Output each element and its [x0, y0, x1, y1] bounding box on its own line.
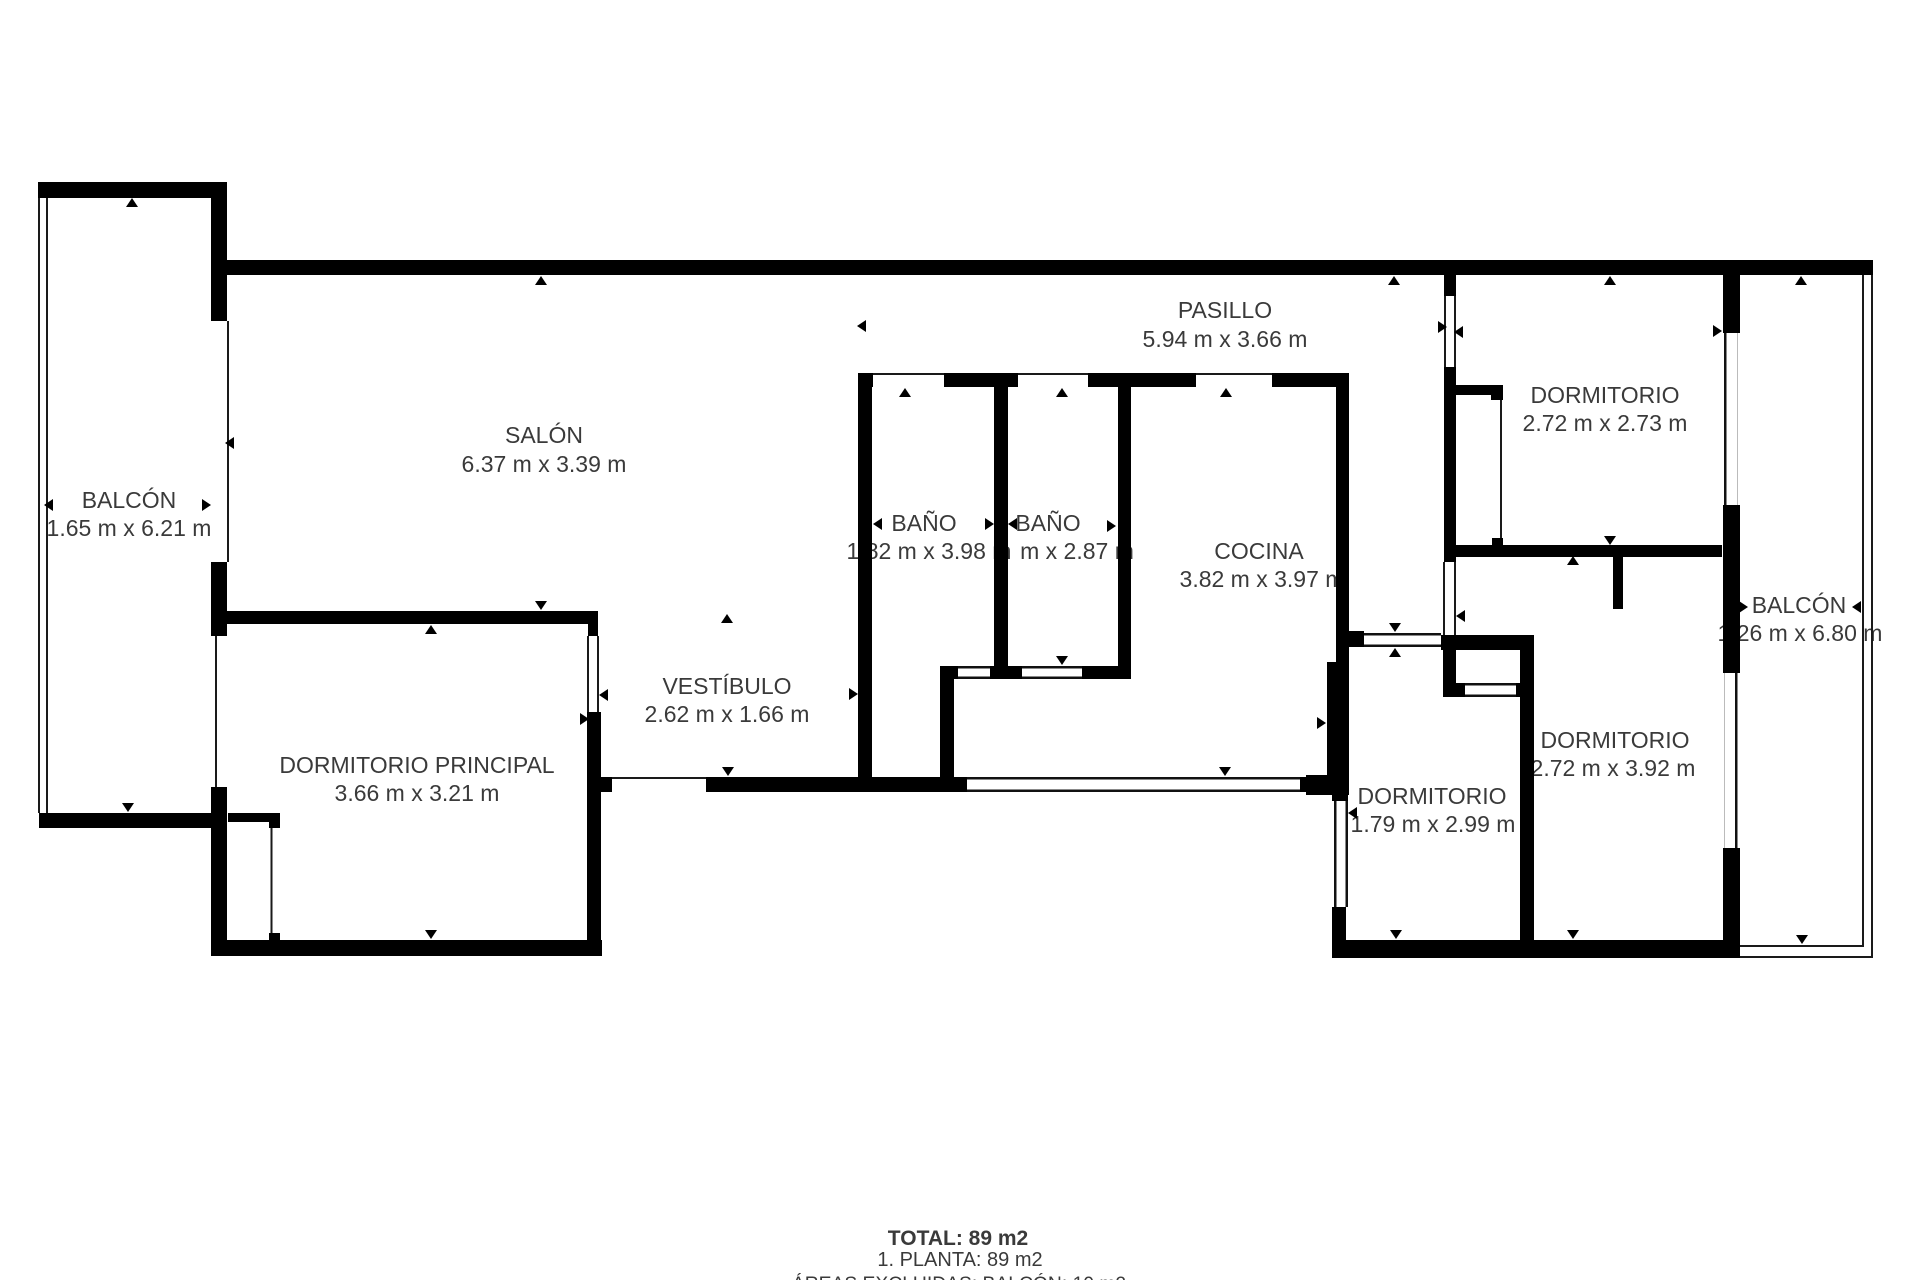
svg-text:2.72 m x 2.73 m: 2.72 m x 2.73 m: [1523, 410, 1688, 436]
svg-text:DORMITORIO: DORMITORIO: [1540, 727, 1689, 753]
svg-text:DORMITORIO PRINCIPAL: DORMITORIO PRINCIPAL: [279, 752, 554, 778]
svg-text:2.62 m x 1.66 m: 2.62 m x 1.66 m: [645, 701, 810, 727]
svg-text:3.66 m x 3.21 m: 3.66 m x 3.21 m: [335, 780, 500, 806]
svg-text:BALCÓN: BALCÓN: [82, 487, 177, 513]
svg-text:BALCÓN: BALCÓN: [1752, 592, 1847, 618]
svg-text:VESTÍBULO: VESTÍBULO: [662, 673, 791, 699]
svg-text:DORMITORIO: DORMITORIO: [1357, 783, 1506, 809]
svg-text:5.94 m x 3.66 m: 5.94 m x 3.66 m: [1143, 326, 1308, 352]
svg-text:m x 2.87 m: m x 2.87 m: [1020, 538, 1134, 564]
svg-text:1.65 m x 6.21 m: 1.65 m x 6.21 m: [47, 515, 212, 541]
svg-text:TOTAL: 89 m2: TOTAL: 89 m2: [888, 1227, 1028, 1250]
svg-text:BAÑO: BAÑO: [1015, 510, 1080, 536]
svg-text:6.37 m x 3.39 m: 6.37 m x 3.39 m: [462, 451, 627, 477]
svg-text:1.26 m x 6.80 m: 1.26 m x 6.80 m: [1718, 620, 1883, 646]
svg-text:PASILLO: PASILLO: [1178, 297, 1272, 323]
svg-text:SALÓN: SALÓN: [505, 422, 583, 448]
svg-text:COCINA: COCINA: [1214, 538, 1304, 564]
svg-text:1. PLANTA: 89 m2: 1. PLANTA: 89 m2: [877, 1249, 1042, 1271]
svg-text:BAÑO: BAÑO: [891, 510, 956, 536]
svg-text:ÁREAS EXCLUIDAS: BALCÓN: 10 m2: ÁREAS EXCLUIDAS: BALCÓN: 10 m2: [792, 1272, 1126, 1280]
svg-text:1.79 m x 2.99 m: 1.79 m x 2.99 m: [1351, 811, 1516, 837]
svg-text:3.82 m x 3.97 m: 3.82 m x 3.97 m: [1180, 566, 1345, 592]
svg-text:2.72 m x 3.92 m: 2.72 m x 3.92 m: [1531, 755, 1696, 781]
svg-text:DORMITORIO: DORMITORIO: [1530, 382, 1679, 408]
